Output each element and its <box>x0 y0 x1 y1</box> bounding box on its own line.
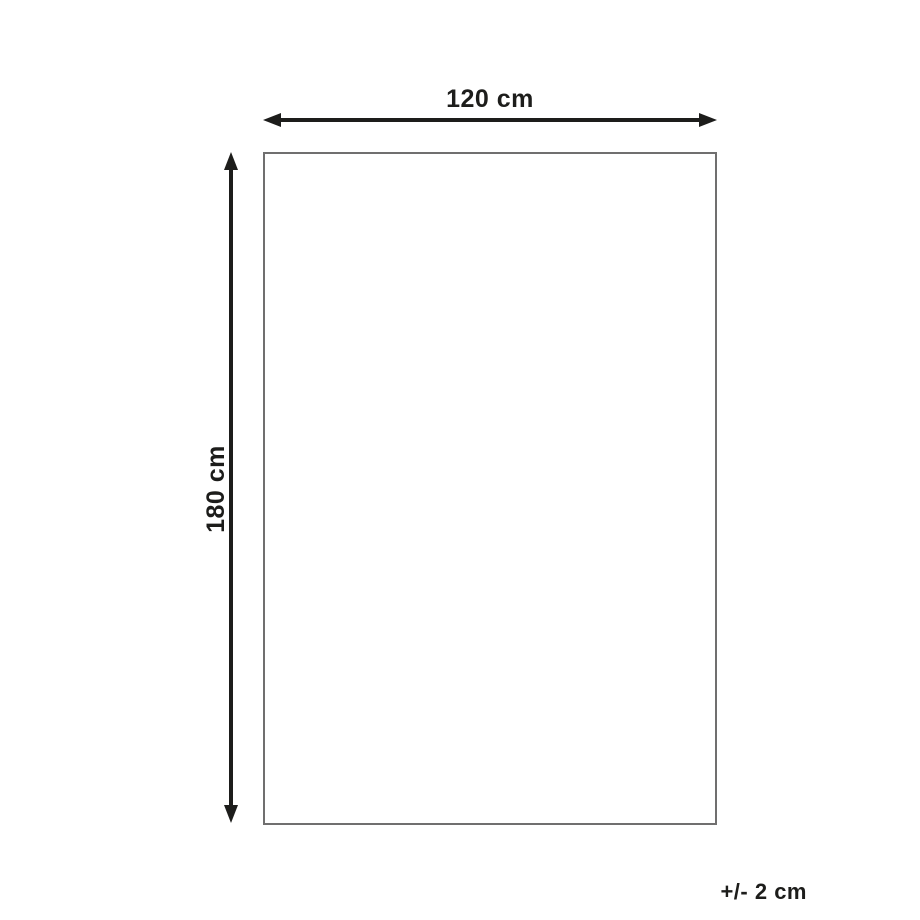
width-dimension-arrow <box>263 113 717 127</box>
tolerance-label: +/- 2 cm <box>720 879 807 905</box>
arrow-right-icon <box>699 113 717 127</box>
product-outline-rectangle <box>263 152 717 825</box>
arrow-down-icon <box>224 805 238 823</box>
height-dimension-label: 180 cm <box>201 429 231 549</box>
dimension-diagram: 120 cm 180 cm +/- 2 cm <box>0 0 920 920</box>
width-dimension-label: 120 cm <box>263 85 717 114</box>
width-arrow-line <box>278 118 702 122</box>
